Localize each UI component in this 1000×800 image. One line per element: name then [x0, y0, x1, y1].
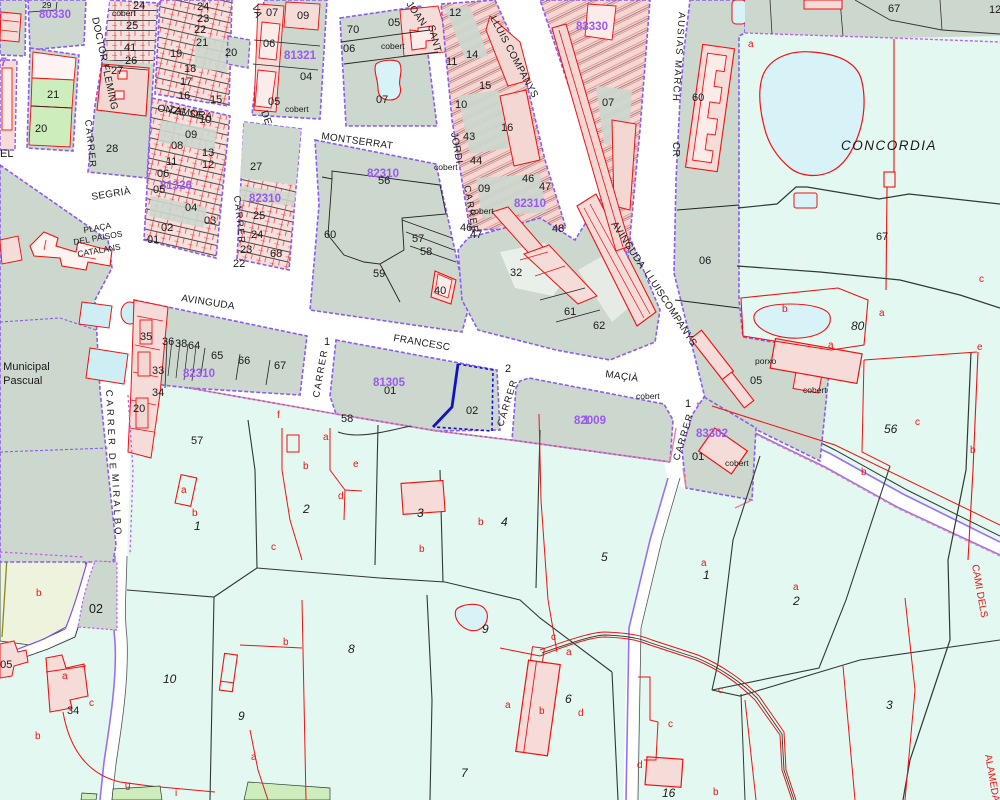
svg-text:cobert: cobert [470, 206, 494, 216]
svg-text:b: b [36, 588, 42, 599]
svg-text:29: 29 [42, 0, 52, 10]
svg-text:5: 5 [601, 550, 608, 564]
svg-text:b: b [539, 706, 545, 717]
svg-text:27: 27 [250, 161, 262, 173]
svg-text:05: 05 [268, 96, 280, 108]
svg-text:59: 59 [373, 268, 385, 280]
svg-text:43: 43 [463, 131, 475, 143]
svg-text:34: 34 [152, 387, 164, 399]
svg-text:3: 3 [417, 506, 424, 520]
svg-text:16: 16 [501, 122, 513, 134]
svg-text:06: 06 [699, 255, 711, 267]
svg-text:20: 20 [35, 123, 47, 135]
svg-text:06: 06 [263, 38, 275, 50]
svg-text:porxo: porxo [755, 356, 777, 366]
svg-text:cobert: cobert [636, 391, 660, 401]
svg-text:11: 11 [446, 56, 457, 68]
svg-text:48: 48 [552, 223, 564, 235]
svg-text:b: b [861, 467, 867, 478]
svg-text:1: 1 [324, 336, 330, 348]
svg-text:cobert: cobert [381, 41, 405, 51]
svg-text:47: 47 [539, 181, 551, 193]
svg-text:cobert: cobert [285, 104, 309, 114]
svg-text:33: 33 [152, 365, 164, 377]
svg-text:CONCORDIA: CONCORDIA [841, 138, 937, 153]
svg-text:35: 35 [140, 331, 152, 343]
svg-text:28: 28 [106, 143, 118, 155]
svg-text:8: 8 [348, 642, 355, 656]
svg-text:24: 24 [133, 0, 145, 12]
svg-text:i: i [175, 788, 177, 799]
svg-text:82009: 82009 [574, 415, 606, 427]
svg-text:67: 67 [274, 360, 286, 372]
svg-text:81321: 81321 [284, 50, 317, 62]
svg-text:04: 04 [300, 71, 312, 83]
svg-text:22: 22 [233, 258, 245, 270]
svg-text:67: 67 [876, 231, 888, 243]
svg-text:34: 34 [67, 705, 79, 717]
svg-text:3: 3 [886, 698, 893, 712]
svg-text:80330: 80330 [39, 9, 71, 21]
svg-text:09: 09 [297, 10, 309, 22]
svg-text:c: c [718, 685, 723, 696]
svg-text:25: 25 [126, 20, 138, 32]
svg-text:2: 2 [505, 363, 511, 375]
svg-text:1: 1 [194, 519, 201, 533]
svg-text:02: 02 [466, 405, 478, 417]
svg-text:25: 25 [253, 210, 265, 222]
svg-text:60: 60 [324, 229, 336, 241]
svg-text:g: g [125, 780, 131, 791]
svg-text:01: 01 [692, 451, 704, 463]
svg-text:14: 14 [466, 49, 478, 61]
svg-text:58: 58 [341, 413, 353, 425]
svg-text:a: a [181, 485, 187, 496]
svg-text:c: c [551, 632, 556, 643]
svg-text:b: b [970, 445, 976, 456]
svg-text:b: b [303, 461, 309, 472]
svg-text:c: c [668, 719, 673, 730]
svg-text:57: 57 [191, 435, 203, 447]
svg-text:2: 2 [792, 594, 800, 608]
svg-text:36: 36 [162, 336, 174, 348]
svg-text:21: 21 [196, 37, 208, 49]
svg-text:67: 67 [888, 3, 900, 15]
svg-text:83302: 83302 [696, 428, 728, 440]
svg-text:05: 05 [153, 184, 165, 196]
svg-text:22: 22 [194, 24, 206, 36]
svg-text:f: f [277, 410, 280, 421]
svg-text:6: 6 [565, 692, 572, 706]
svg-text:d: d [637, 760, 643, 771]
svg-text:03: 03 [204, 215, 216, 227]
svg-text:40: 40 [434, 285, 446, 297]
svg-text:b: b [35, 731, 41, 742]
svg-text:60: 60 [692, 92, 704, 104]
svg-text:06: 06 [343, 43, 355, 55]
svg-text:b: b [782, 304, 788, 315]
svg-text:13: 13 [202, 147, 214, 159]
svg-text:57: 57 [412, 233, 424, 245]
svg-text:83330: 83330 [576, 21, 608, 33]
svg-text:46: 46 [522, 173, 534, 185]
svg-text:10: 10 [455, 99, 467, 111]
svg-text:b: b [713, 787, 719, 798]
svg-text:c: c [271, 542, 276, 553]
svg-text:b: b [419, 544, 425, 555]
svg-text:n Pascual: n Pascual [0, 375, 42, 387]
svg-text:e: e [353, 459, 359, 470]
svg-text:a: a [505, 700, 511, 711]
svg-text:c: c [979, 274, 984, 285]
svg-text:64: 64 [188, 340, 200, 352]
svg-text:1: 1 [685, 398, 691, 410]
svg-text:06: 06 [157, 168, 169, 180]
svg-text:b: b [283, 637, 289, 648]
svg-text:01: 01 [147, 234, 159, 246]
svg-text:d: d [578, 708, 584, 719]
svg-text:905: 905 [0, 659, 12, 671]
svg-text:23: 23 [240, 244, 252, 256]
svg-text:61: 61 [564, 306, 576, 318]
svg-text:15: 15 [479, 80, 491, 92]
svg-text:10: 10 [199, 114, 211, 126]
svg-text:05: 05 [750, 375, 762, 387]
svg-text:04: 04 [185, 202, 197, 214]
svg-text:12: 12 [989, 4, 1000, 16]
svg-text:a: a [566, 647, 572, 658]
svg-text:62: 62 [593, 320, 605, 332]
svg-text:18: 18 [184, 63, 196, 75]
svg-text:24: 24 [251, 229, 263, 241]
svg-text:27: 27 [0, 57, 7, 69]
svg-text:1: 1 [583, 415, 590, 427]
svg-text:38: 38 [175, 338, 187, 350]
svg-text:02: 02 [161, 222, 173, 234]
svg-text:47: 47 [470, 229, 482, 241]
svg-text:4: 4 [501, 515, 508, 529]
svg-text:24: 24 [197, 1, 209, 13]
svg-text:a: a [879, 308, 885, 319]
svg-text:44: 44 [470, 155, 482, 167]
svg-text:70: 70 [347, 24, 359, 36]
svg-text:16: 16 [662, 786, 676, 800]
svg-text:08: 08 [171, 140, 183, 152]
svg-text:56: 56 [884, 422, 898, 436]
svg-text:80: 80 [851, 319, 865, 333]
svg-text:68: 68 [270, 248, 282, 260]
svg-text:16: 16 [178, 90, 190, 102]
svg-text:15: 15 [210, 94, 222, 106]
svg-text:05: 05 [388, 17, 400, 29]
svg-text:cobert: cobert [725, 458, 749, 468]
svg-text:09: 09 [478, 183, 490, 195]
svg-text:01: 01 [384, 385, 396, 397]
svg-text:e: e [977, 342, 983, 353]
svg-text:65: 65 [211, 350, 223, 362]
svg-text:09: 09 [185, 129, 197, 141]
svg-text:a: a [323, 432, 329, 443]
svg-text:1: 1 [703, 568, 710, 582]
svg-text:cobert: cobert [803, 385, 827, 395]
svg-text:82310: 82310 [514, 198, 546, 210]
svg-text:12: 12 [202, 159, 214, 171]
svg-text:c: c [915, 417, 920, 428]
svg-text:20: 20 [133, 403, 145, 415]
svg-text:26: 26 [125, 55, 137, 67]
svg-text:58: 58 [420, 246, 432, 258]
svg-text:9: 9 [482, 622, 489, 636]
svg-text:a: a [62, 671, 68, 682]
svg-text:82310: 82310 [249, 193, 281, 205]
svg-text:a: a [748, 39, 754, 50]
svg-text:19: 19 [170, 48, 182, 60]
svg-text:20: 20 [225, 47, 237, 59]
svg-text:82310: 82310 [183, 368, 215, 380]
svg-text:CR: CR [670, 142, 681, 157]
svg-text:41: 41 [124, 42, 136, 54]
svg-text:11: 11 [166, 156, 177, 168]
svg-text:a: a [793, 582, 799, 593]
svg-text:DE: DE [106, 453, 118, 473]
svg-text:a: a [828, 340, 834, 351]
svg-text:12: 12 [449, 7, 461, 19]
svg-text:17: 17 [180, 76, 192, 88]
svg-text:ó Municipal: ó Municipal [0, 361, 50, 373]
svg-text:b: b [478, 517, 484, 528]
svg-text:27: 27 [111, 65, 123, 77]
svg-text:21: 21 [47, 89, 59, 101]
svg-text:d: d [338, 491, 344, 502]
svg-text:b: b [192, 508, 198, 519]
svg-text:10: 10 [163, 672, 177, 686]
svg-text:EL: EL [0, 148, 13, 160]
svg-text:9: 9 [238, 709, 245, 723]
svg-text:cobert: cobert [434, 162, 458, 172]
svg-text:02: 02 [89, 602, 103, 616]
svg-text:07: 07 [602, 97, 614, 109]
svg-text:66: 66 [238, 355, 250, 367]
svg-text:56: 56 [378, 175, 390, 187]
svg-text:2: 2 [302, 502, 310, 516]
svg-text:07: 07 [266, 7, 278, 19]
svg-text:a: a [251, 752, 257, 763]
svg-text:07: 07 [376, 94, 388, 106]
svg-text:c: c [89, 698, 94, 709]
svg-text:32: 32 [510, 267, 522, 279]
